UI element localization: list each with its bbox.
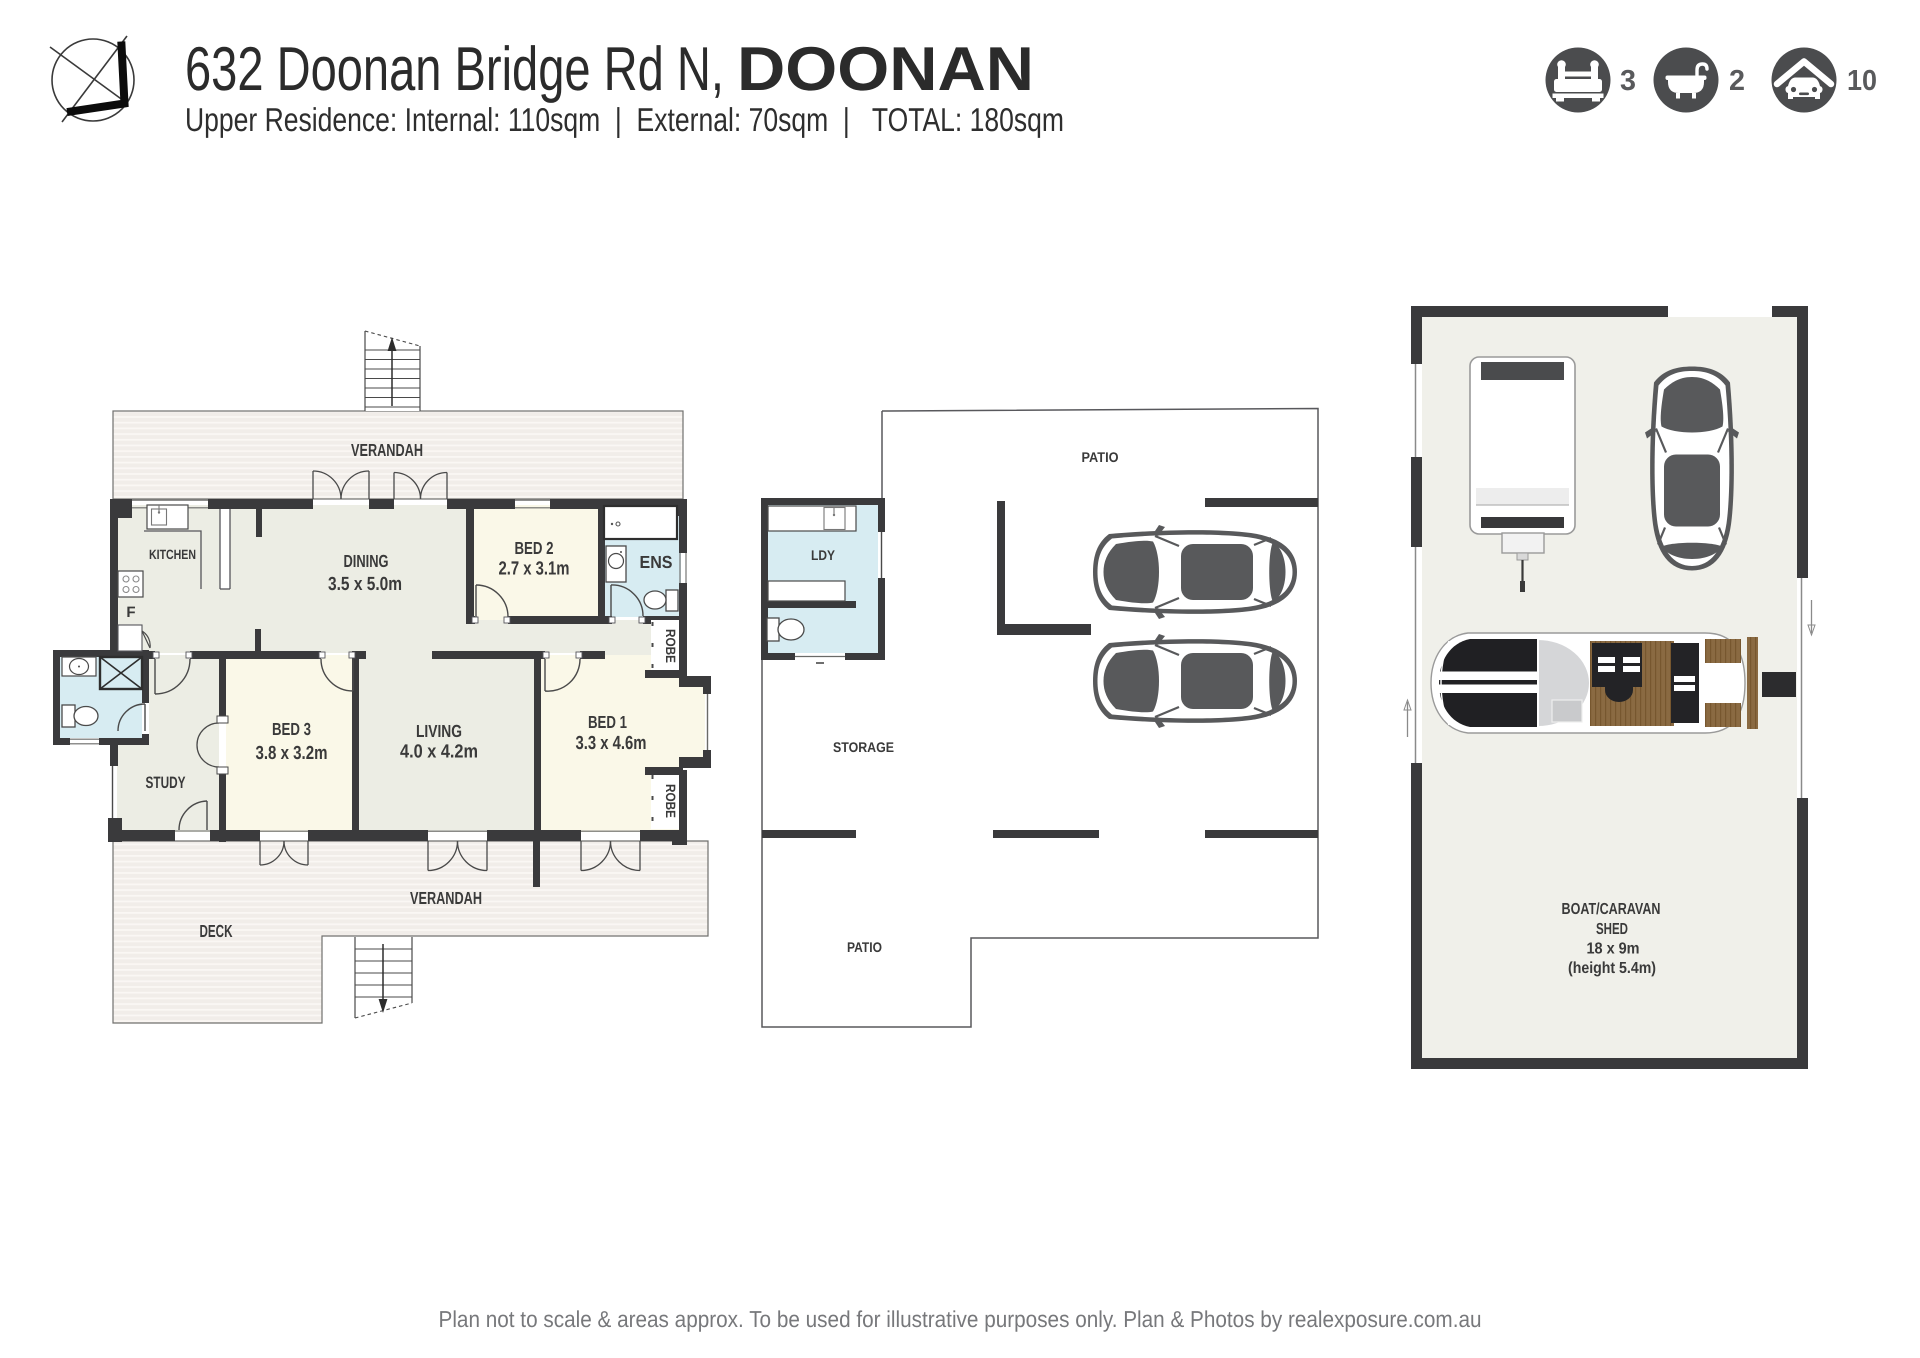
- svg-text:ENS: ENS: [640, 552, 673, 572]
- svg-text:(height 5.4m): (height 5.4m): [1568, 960, 1656, 977]
- svg-text:Plan not to scale & areas appr: Plan not to scale & areas approx. To be …: [439, 1306, 1482, 1332]
- svg-text:4.0 x 4.2m: 4.0 x 4.2m: [400, 742, 478, 763]
- svg-text:3.3 x 4.6m: 3.3 x 4.6m: [576, 733, 647, 754]
- svg-text:ROBE: ROBE: [663, 784, 678, 818]
- svg-text:3.5 x 5.0m: 3.5 x 5.0m: [328, 574, 402, 595]
- svg-text:3.8 x 3.2m: 3.8 x 3.2m: [256, 743, 328, 764]
- svg-text:SHED: SHED: [1596, 921, 1628, 938]
- svg-text:PATIO: PATIO: [847, 939, 882, 955]
- svg-text:KITCHEN: KITCHEN: [149, 547, 196, 562]
- svg-text:Upper Residence: Internal: 110: Upper Residence: Internal: 110sqm | Exte…: [185, 101, 1064, 138]
- svg-text:BED 1: BED 1: [588, 712, 627, 732]
- svg-text:VERANDAH: VERANDAH: [351, 440, 423, 460]
- svg-text:632 Doonan Bridge Rd N, DOONAN: 632 Doonan Bridge Rd N, DOONAN: [185, 35, 1034, 104]
- svg-text:3: 3: [1620, 65, 1636, 97]
- svg-text:ROBE: ROBE: [663, 629, 678, 663]
- svg-text:PATIO: PATIO: [1082, 449, 1119, 465]
- svg-text:DINING: DINING: [344, 551, 389, 571]
- svg-text:18 x 9m: 18 x 9m: [1587, 941, 1640, 958]
- svg-text:F: F: [126, 604, 135, 621]
- svg-text:LIVING: LIVING: [416, 721, 462, 741]
- svg-text:STORAGE: STORAGE: [833, 739, 894, 755]
- svg-text:BED 3: BED 3: [272, 719, 311, 739]
- svg-text:BOAT/CARAVAN: BOAT/CARAVAN: [1562, 901, 1661, 918]
- svg-text:VERANDAH: VERANDAH: [410, 888, 482, 908]
- svg-text:2: 2: [1729, 65, 1745, 97]
- svg-text:2.7 x 3.1m: 2.7 x 3.1m: [499, 559, 570, 580]
- svg-text:STUDY: STUDY: [146, 774, 186, 792]
- svg-text:LDY: LDY: [811, 547, 836, 563]
- svg-text:DECK: DECK: [200, 921, 233, 941]
- svg-text:BED 2: BED 2: [515, 538, 554, 558]
- svg-text:10: 10: [1847, 65, 1877, 97]
